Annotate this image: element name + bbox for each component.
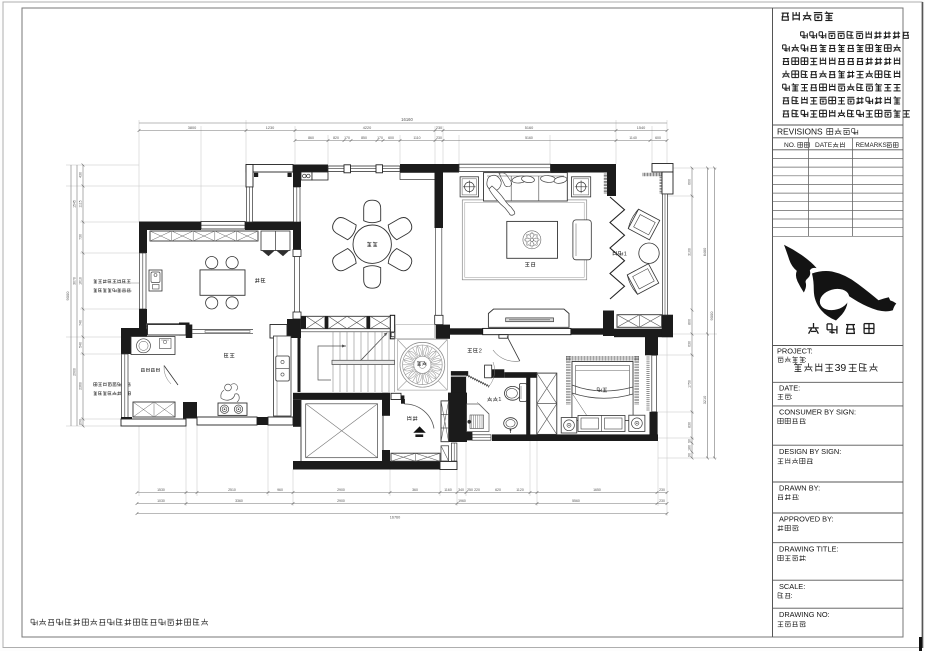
svg-text:230: 230	[436, 136, 442, 140]
svg-text:3070: 3070	[73, 277, 77, 285]
svg-text:230: 230	[436, 126, 442, 130]
svg-text::: :	[791, 593, 793, 600]
svg-text:1750: 1750	[688, 380, 692, 388]
svg-text:170: 170	[344, 136, 350, 140]
svg-text::: :	[812, 459, 814, 466]
svg-text::: :	[805, 556, 807, 563]
svg-text::: :	[791, 394, 793, 401]
svg-text:2360: 2360	[79, 382, 83, 390]
svg-text:1540: 1540	[637, 126, 645, 130]
svg-text:1960: 1960	[458, 499, 466, 503]
svg-text:1120: 1120	[516, 488, 524, 492]
svg-text:1530: 1530	[157, 488, 165, 492]
svg-text:5560: 5560	[572, 499, 580, 503]
svg-text:690: 690	[79, 419, 83, 425]
svg-text:1160: 1160	[444, 488, 452, 492]
svg-text:800: 800	[688, 319, 692, 325]
svg-text:REVISIONS: REVISIONS	[777, 126, 823, 136]
svg-text:860: 860	[308, 136, 314, 140]
svg-text:600: 600	[655, 136, 661, 140]
svg-text:1030: 1030	[157, 499, 165, 503]
svg-text:540: 540	[79, 342, 83, 348]
svg-text:1: 1	[498, 397, 501, 403]
svg-text:230: 230	[659, 499, 665, 503]
svg-text:5160: 5160	[525, 136, 533, 140]
svg-text:3800: 3800	[188, 126, 196, 130]
svg-text:1140: 1140	[629, 136, 637, 140]
svg-text:2510: 2510	[228, 488, 236, 492]
svg-text:1545: 1545	[73, 200, 77, 208]
svg-text:180: 180	[688, 445, 692, 451]
svg-text:230: 230	[659, 488, 665, 492]
svg-text:600: 600	[688, 179, 692, 185]
svg-text:6460: 6460	[703, 248, 707, 256]
svg-text:430: 430	[79, 172, 83, 178]
svg-text:39: 39	[835, 362, 847, 374]
svg-text:1230: 1230	[266, 126, 274, 130]
svg-text:600: 600	[388, 136, 394, 140]
svg-text:340: 340	[458, 488, 464, 492]
svg-text:3360: 3360	[235, 499, 243, 503]
svg-text:360: 360	[412, 488, 418, 492]
svg-text::: :	[805, 357, 807, 364]
svg-text:5160: 5160	[525, 126, 533, 130]
svg-text:3100: 3100	[688, 248, 692, 256]
svg-text:SCALE:: SCALE:	[779, 582, 805, 591]
svg-text:220: 220	[474, 488, 480, 492]
svg-text:850: 850	[361, 136, 367, 140]
svg-text:90: 90	[688, 439, 692, 443]
svg-text::: :	[798, 495, 800, 502]
svg-text:DRAWN BY:: DRAWN BY:	[779, 483, 820, 492]
svg-text:APPROVED BY:: APPROVED BY:	[779, 515, 834, 524]
svg-text:170: 170	[377, 136, 383, 140]
svg-text::: :	[798, 526, 800, 533]
svg-text::: :	[805, 622, 807, 629]
svg-text:2900: 2900	[337, 488, 345, 492]
svg-text:DRAWING NO:: DRAWING NO:	[779, 610, 830, 619]
svg-text:1110: 1110	[413, 136, 420, 140]
svg-text:630: 630	[688, 341, 692, 347]
svg-text:1: 1	[624, 251, 627, 257]
svg-text:3210: 3210	[703, 396, 707, 404]
svg-text:9000: 9000	[65, 291, 70, 301]
svg-text::: :	[805, 419, 807, 426]
svg-text:730: 730	[79, 234, 83, 240]
svg-text:DESIGN BY SIGN:: DESIGN BY SIGN:	[779, 447, 841, 456]
svg-text:PROJECT:: PROJECT:	[777, 346, 813, 355]
svg-text:DATE: DATE	[815, 142, 833, 149]
svg-text:1115: 1115	[79, 200, 83, 207]
svg-text:2900: 2900	[337, 499, 345, 503]
svg-text:REMARKS: REMARKS	[856, 142, 887, 149]
svg-text:DATE:: DATE:	[779, 383, 800, 392]
svg-text:2900: 2900	[73, 368, 77, 376]
svg-text:1610: 1610	[79, 277, 83, 285]
svg-text:4220: 4220	[363, 126, 371, 130]
svg-text:9000: 9000	[709, 311, 714, 321]
svg-text:1650: 1650	[593, 488, 601, 492]
svg-text:90: 90	[688, 453, 692, 457]
svg-text:830: 830	[688, 422, 692, 428]
svg-text:16760: 16760	[390, 516, 401, 520]
svg-text:250: 250	[467, 488, 473, 492]
svg-text:740: 740	[79, 320, 83, 326]
svg-text:620: 620	[495, 488, 501, 492]
svg-text:16160: 16160	[401, 117, 413, 122]
svg-text:CONSUMER BY SIGN:: CONSUMER BY SIGN:	[779, 407, 856, 416]
svg-text:820: 820	[333, 136, 339, 140]
svg-text:NO.: NO.	[784, 142, 796, 149]
svg-text:960: 960	[277, 488, 283, 492]
svg-text:2: 2	[479, 348, 482, 354]
svg-text:DRAWING TITLE:: DRAWING TITLE:	[779, 545, 839, 554]
